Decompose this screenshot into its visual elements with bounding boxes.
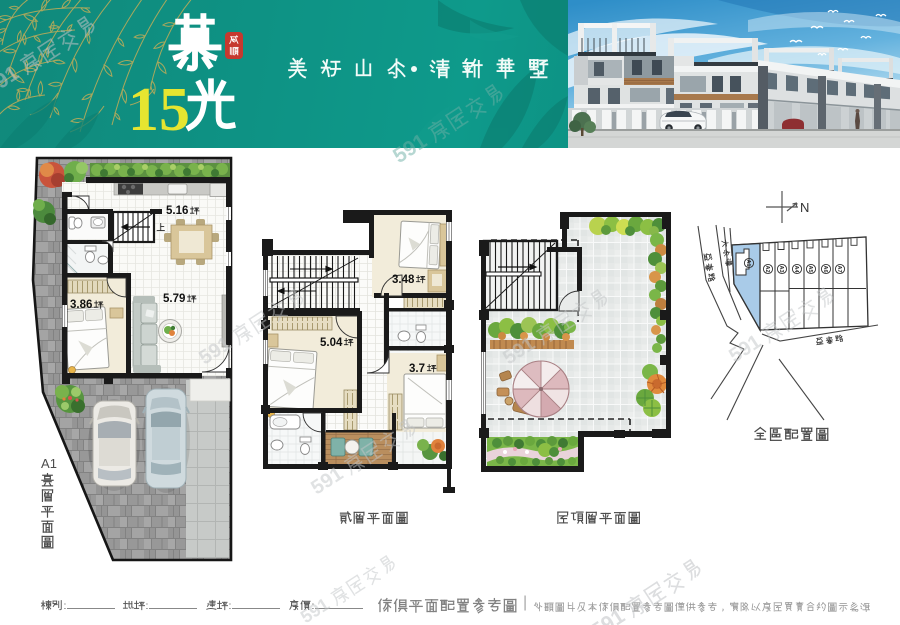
svg-text::: : xyxy=(312,600,315,612)
svg-text:A4: A4 xyxy=(793,265,799,273)
svg-text:A5: A5 xyxy=(807,265,813,272)
svg-text:A1: A1 xyxy=(745,259,751,266)
svg-text:3.86: 3.86 xyxy=(70,299,92,311)
svg-text:N: N xyxy=(800,200,809,215)
svg-text::: : xyxy=(146,600,149,612)
svg-text:A3: A3 xyxy=(778,265,784,272)
svg-text::: : xyxy=(229,600,232,612)
svg-text:5.79: 5.79 xyxy=(163,293,185,305)
svg-text:5.16: 5.16 xyxy=(166,205,188,217)
svg-text:A6: A6 xyxy=(822,265,828,272)
svg-text:591: 591 xyxy=(297,594,333,625)
svg-text:A2: A2 xyxy=(764,265,770,272)
svg-text::: : xyxy=(64,600,67,612)
svg-text:3.48: 3.48 xyxy=(392,274,415,286)
svg-text:A7: A7 xyxy=(836,265,842,272)
svg-text:591: 591 xyxy=(587,604,629,625)
svg-text:5.04: 5.04 xyxy=(320,337,343,349)
svg-text:3.7: 3.7 xyxy=(409,363,425,375)
